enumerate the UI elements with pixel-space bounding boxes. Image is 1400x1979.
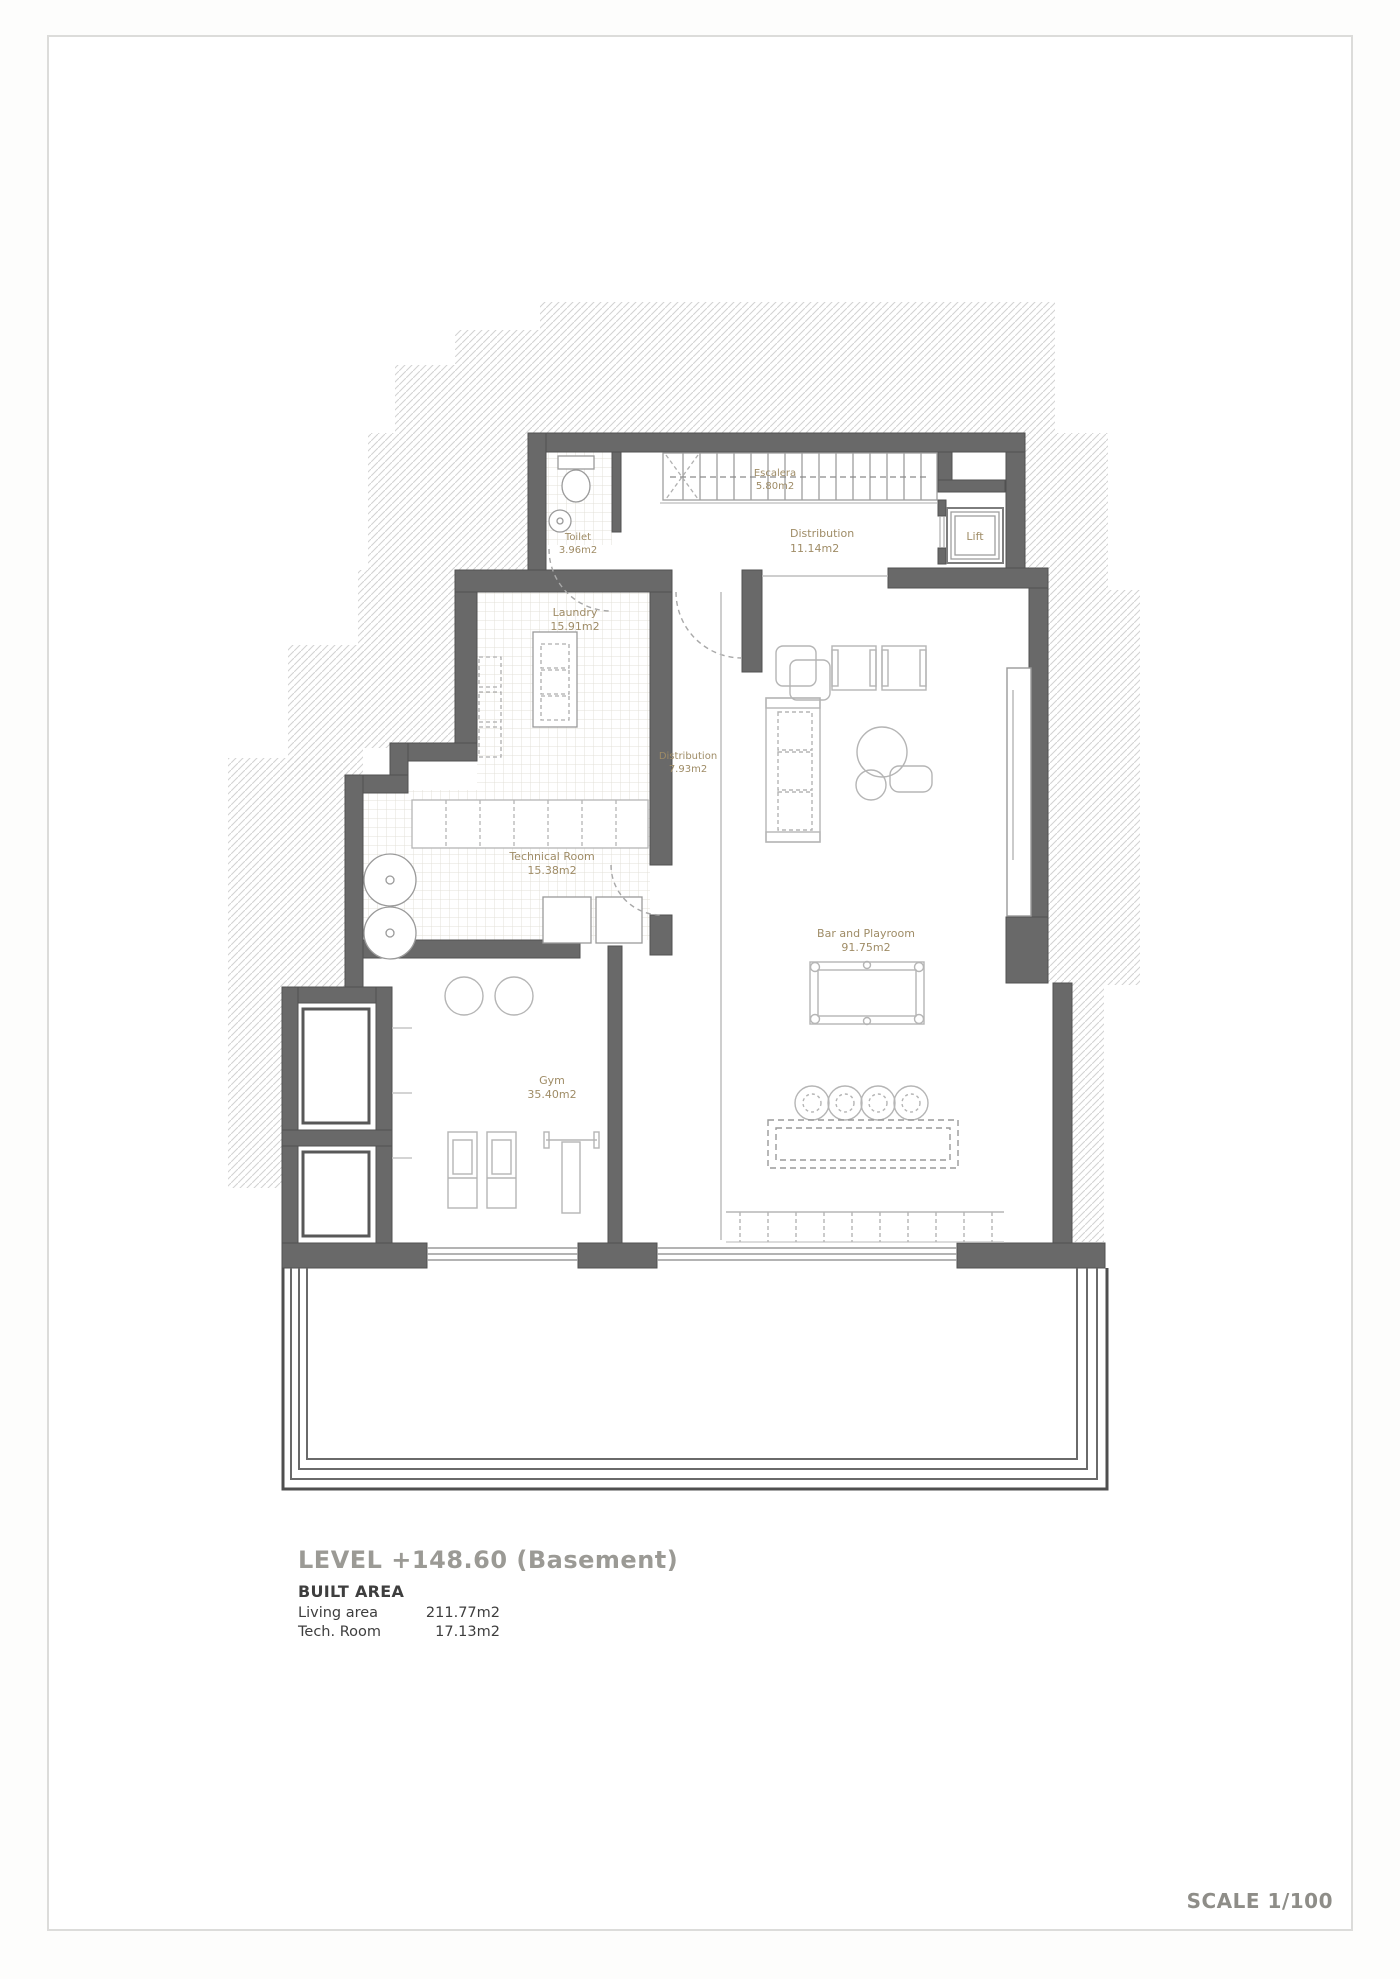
- bar-playroom-area: 91.75m2: [841, 941, 890, 954]
- technical-room-label: Technical Room: [508, 850, 594, 863]
- wall-hall-stub: [742, 570, 762, 672]
- toilet-area: 3.96m2: [559, 545, 597, 556]
- wall-right-lower: [1053, 983, 1072, 1243]
- floor-plan-svg: Toilet 3.96m2 Escalera 5.80m2 Distributi…: [0, 0, 1400, 1979]
- tech-room-label: Tech. Room: [297, 1624, 381, 1640]
- tech-equipment-1: [543, 897, 591, 943]
- wall-tech-left: [345, 775, 363, 987]
- tech-shelves: [412, 800, 648, 848]
- stairs-label: Escalera: [754, 468, 796, 479]
- wall-top: [528, 433, 1025, 452]
- wall-storage-mid: [282, 1130, 392, 1146]
- wall-laundry-top: [455, 570, 672, 592]
- distribution-upper-area: 11.14m2: [790, 542, 839, 555]
- wc-bowl: [562, 470, 590, 502]
- wall-corridor-left: [650, 592, 672, 865]
- drawing-sheet: Toilet 3.96m2 Escalera 5.80m2 Distributi…: [0, 0, 1400, 1979]
- distribution-lower-label: Distribution: [659, 751, 717, 762]
- wall-right-mid: [1029, 588, 1048, 920]
- wall-gym-bar: [608, 946, 622, 1243]
- wall-closet-bottom: [938, 480, 1005, 492]
- distribution-lower-area: 7.93m2: [669, 764, 707, 775]
- wall-lift-stub-top: [938, 500, 946, 516]
- wall-toilet-left: [528, 433, 546, 578]
- wall-lift-stub-bottom: [938, 548, 946, 564]
- wall-laundry-left: [455, 592, 477, 743]
- wall-storage-left: [282, 987, 298, 1268]
- gym-area: 35.40m2: [527, 1088, 576, 1101]
- living-area-label: Living area: [298, 1605, 378, 1621]
- storage-room-2: [303, 1152, 369, 1236]
- storage-rooms: [303, 1009, 369, 1236]
- stairs-area: 5.80m2: [756, 481, 794, 492]
- storage-room-1: [303, 1009, 369, 1123]
- media-console: [1007, 668, 1031, 916]
- tech-tank-1: [364, 854, 416, 906]
- wall-right-pier: [1006, 917, 1048, 983]
- bar-playroom-label: Bar and Playroom: [817, 927, 915, 940]
- wall-pier-2: [578, 1243, 657, 1268]
- living-area-value: 211.77m2: [426, 1605, 500, 1621]
- built-area-heading: BUILT AREA: [298, 1582, 405, 1601]
- wall-storage-right: [376, 987, 392, 1243]
- level-title: LEVEL +148.60 (Basement): [298, 1546, 678, 1574]
- laundry-area: 15.91m2: [550, 620, 599, 633]
- laundry-island: [533, 632, 577, 727]
- lift-label: Lift: [966, 530, 984, 543]
- tech-room-value: 17.13m2: [435, 1624, 500, 1640]
- wall-corridor-left-stub: [650, 915, 672, 955]
- distribution-upper-label: Distribution: [790, 527, 854, 540]
- tech-tank-2: [364, 907, 416, 959]
- laundry-label: Laundry: [553, 606, 598, 619]
- wall-pier-3: [957, 1243, 1105, 1268]
- gym-label: Gym: [539, 1074, 565, 1087]
- wall-below-lift: [888, 568, 1048, 588]
- wall-pier-1: [282, 1243, 427, 1268]
- tech-equipment-2: [596, 897, 642, 943]
- wc-cistern: [558, 456, 594, 469]
- toilet-label: Toilet: [564, 532, 591, 543]
- technical-room-area: 15.38m2: [527, 864, 576, 877]
- toilet-sink-drain: [557, 518, 563, 524]
- scale-label: SCALE 1/100: [1187, 1889, 1333, 1913]
- wall-toilet-separator: [612, 452, 621, 532]
